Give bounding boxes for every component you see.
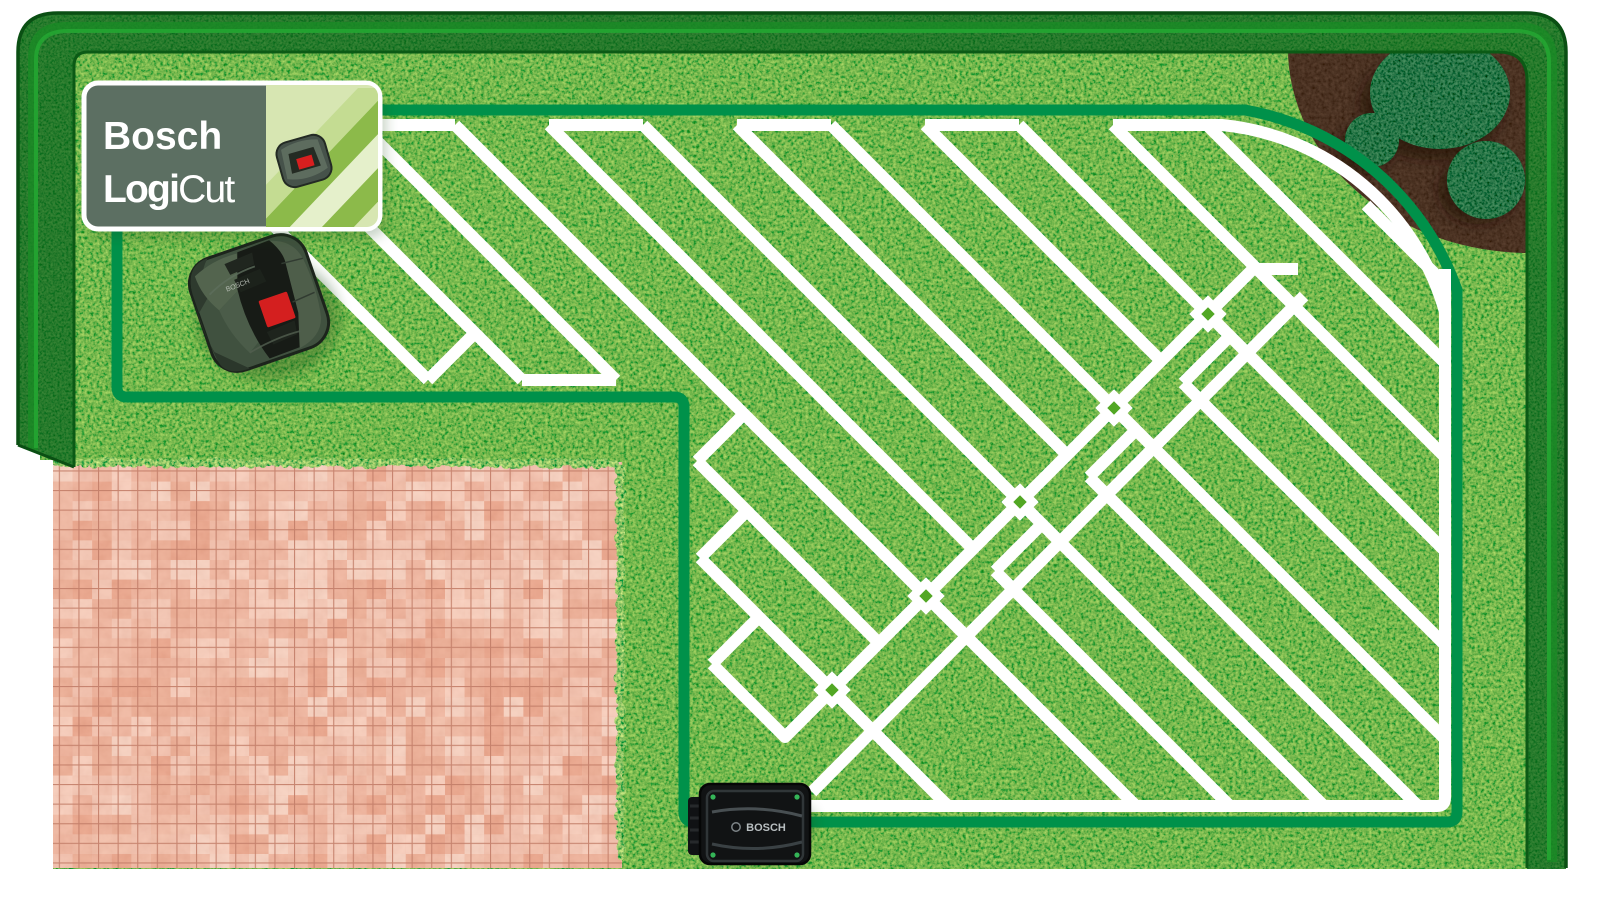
svg-text:Bosch: Bosch (103, 115, 222, 158)
svg-text:BOSCH: BOSCH (746, 822, 786, 834)
svg-text:LogiCut: LogiCut (103, 168, 235, 211)
